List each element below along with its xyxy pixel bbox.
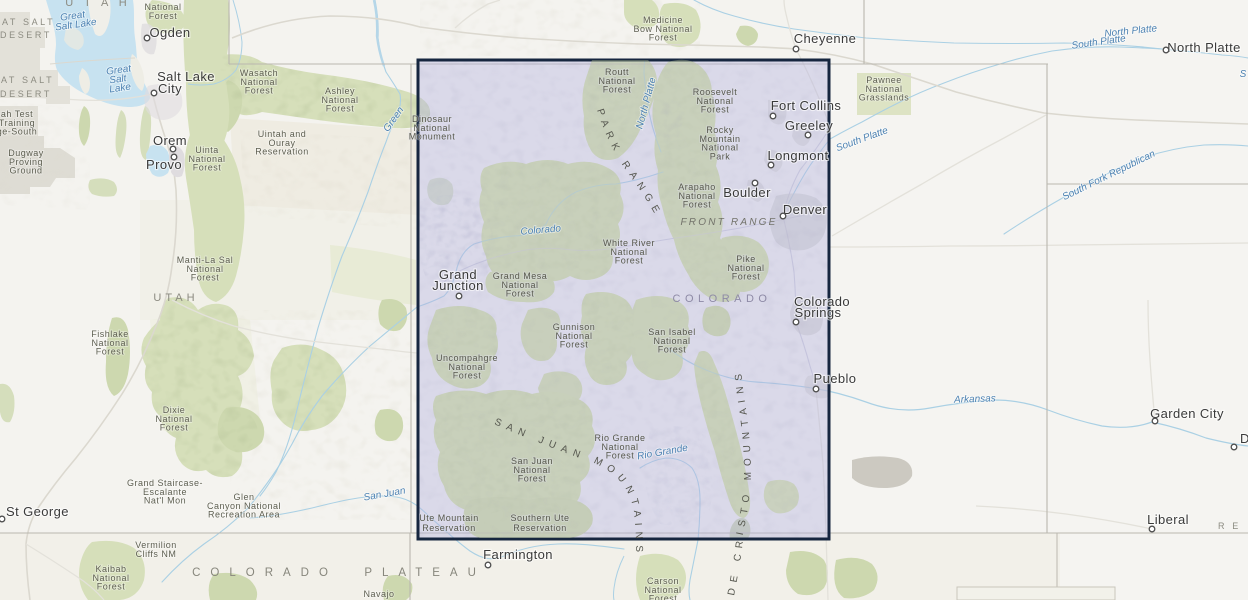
svg-text:Ogden: Ogden	[149, 25, 190, 40]
svg-text:COLORADO PLATEAU: COLORADO PLATEAU	[192, 567, 486, 579]
svg-text:DESERT: DESERT	[0, 30, 52, 40]
svg-text:R E: R E	[1218, 521, 1241, 531]
svg-text:Greeley: Greeley	[785, 118, 833, 133]
svg-text:Longmont: Longmont	[767, 148, 828, 163]
svg-text:North Platte: North Platte	[1167, 40, 1240, 55]
svg-text:CarsonNationalForest: CarsonNationalForest	[644, 576, 681, 600]
svg-text:Garden City: Garden City	[1150, 406, 1224, 421]
svg-text:KaibabNationalForest: KaibabNationalForest	[92, 564, 129, 592]
svg-text:Navajo: Navajo	[363, 589, 394, 599]
svg-text:Do: Do	[1240, 431, 1248, 446]
svg-text:UTAH: UTAH	[153, 292, 198, 304]
svg-text:AT SALT: AT SALT	[2, 17, 55, 27]
svg-text:St George: St George	[6, 504, 69, 519]
svg-text:ah TestTrainingge-South: ah TestTrainingge-South	[0, 109, 37, 137]
svg-text:Orem: Orem	[153, 133, 187, 148]
svg-text:DESERT: DESERT	[0, 89, 52, 99]
svg-text:Ute MountainReservation: Ute MountainReservation	[419, 513, 479, 533]
svg-text:City: City	[158, 81, 182, 96]
svg-text:Pueblo: Pueblo	[814, 371, 857, 386]
svg-text:Southern UteReservation: Southern UteReservation	[510, 513, 569, 533]
svg-text:Farmington: Farmington	[483, 547, 553, 562]
svg-text:FishlakeNationalForest: FishlakeNationalForest	[91, 329, 129, 357]
svg-text:PawneeNationalGrasslands: PawneeNationalGrasslands	[859, 75, 910, 103]
svg-text:ArapahoNationalForest: ArapahoNationalForest	[678, 182, 716, 210]
svg-text:Arkansas: Arkansas	[953, 393, 996, 405]
svg-text:NationalForest: NationalForest	[144, 2, 181, 21]
svg-text:DugwayProvingGround: DugwayProvingGround	[8, 148, 44, 176]
svg-text:WasatchNationalForest: WasatchNationalForest	[240, 68, 278, 96]
svg-text:COLORADO: COLORADO	[673, 293, 772, 305]
svg-text:FRONT RANGE: FRONT RANGE	[681, 217, 778, 228]
svg-text:S: S	[1240, 69, 1247, 80]
svg-text:Boulder: Boulder	[723, 185, 771, 200]
svg-text:AT SALT: AT SALT	[1, 75, 54, 85]
svg-text:Cheyenne: Cheyenne	[794, 31, 856, 46]
svg-text:Fort Collins: Fort Collins	[771, 98, 842, 113]
svg-text:AshleyNationalForest: AshleyNationalForest	[321, 86, 358, 114]
svg-text:Denver: Denver	[783, 202, 828, 217]
svg-text:VermilionCliffs NM: VermilionCliffs NM	[135, 540, 177, 559]
svg-text:Junction: Junction	[432, 278, 484, 293]
svg-text:U T A H: U T A H	[65, 0, 131, 9]
svg-text:DinosaurNationalMonument: DinosaurNationalMonument	[409, 114, 456, 142]
svg-text:Springs: Springs	[795, 305, 842, 320]
svg-text:Liberal: Liberal	[1147, 512, 1189, 527]
